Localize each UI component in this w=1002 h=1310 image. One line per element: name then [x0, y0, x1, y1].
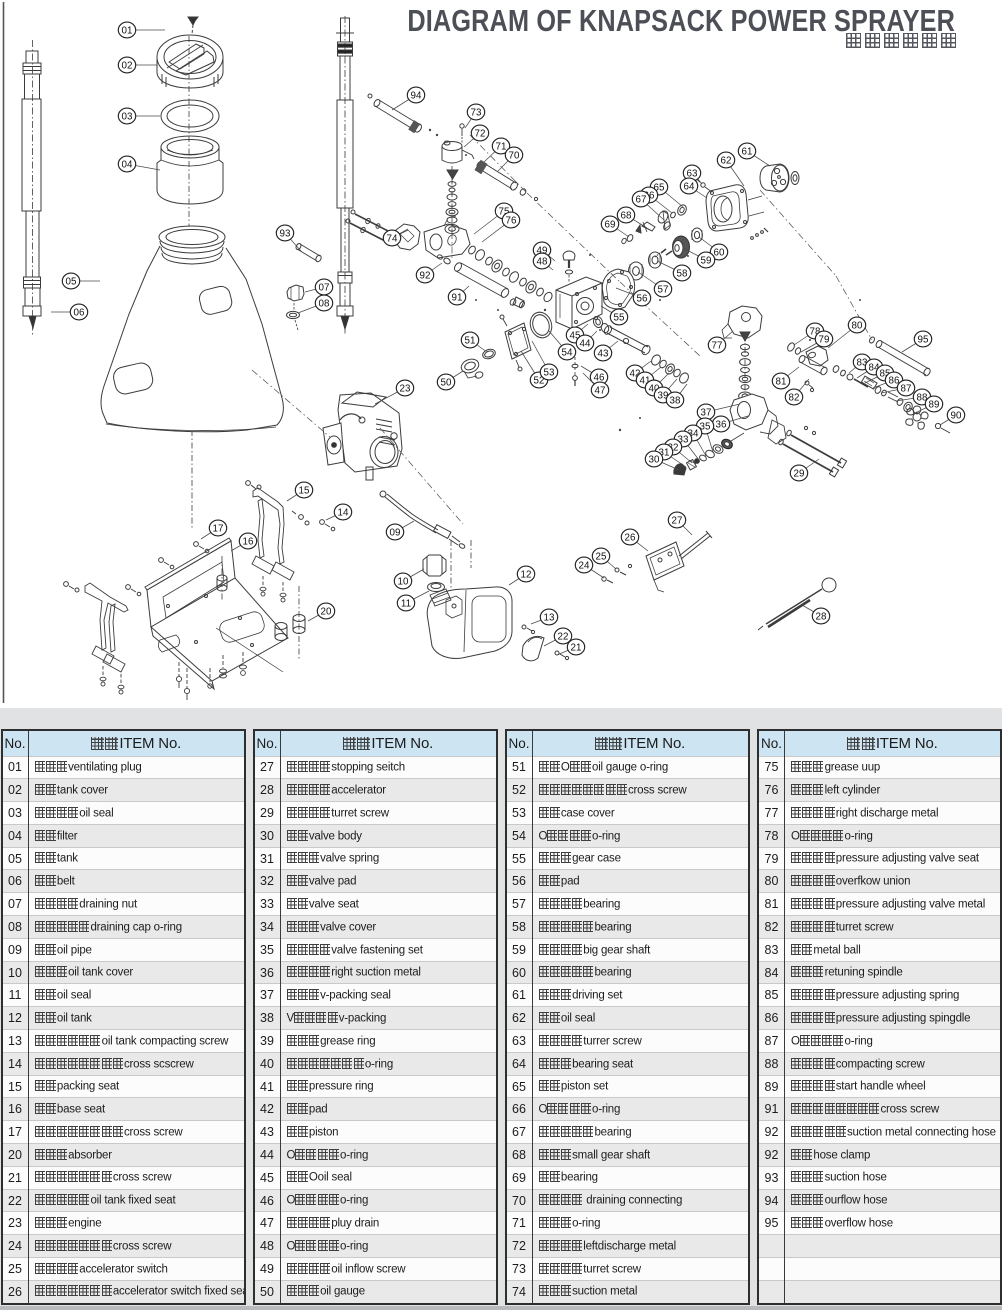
- svg-text:93: 93: [280, 228, 291, 239]
- svg-text:12: 12: [521, 569, 532, 580]
- svg-text:24: 24: [579, 560, 590, 571]
- svg-text:29: 29: [794, 468, 805, 479]
- svg-text:07: 07: [319, 282, 330, 293]
- svg-text:81: 81: [776, 376, 787, 387]
- svg-text:67: 67: [636, 194, 647, 205]
- svg-text:14: 14: [338, 507, 349, 518]
- svg-text:70: 70: [509, 150, 520, 161]
- svg-text:04: 04: [122, 159, 133, 170]
- svg-text:71: 71: [496, 141, 507, 152]
- svg-text:37: 37: [701, 407, 712, 418]
- svg-text:53: 53: [544, 367, 555, 378]
- svg-text:11: 11: [401, 598, 411, 609]
- svg-text:56: 56: [637, 293, 648, 304]
- svg-text:60: 60: [714, 247, 725, 258]
- svg-text:92: 92: [420, 270, 431, 281]
- svg-text:20: 20: [321, 606, 332, 617]
- svg-text:59: 59: [701, 255, 712, 266]
- svg-text:72: 72: [475, 128, 486, 139]
- svg-text:05: 05: [66, 276, 77, 287]
- svg-text:94: 94: [411, 90, 422, 101]
- svg-text:21: 21: [571, 642, 582, 653]
- svg-text:74: 74: [387, 233, 398, 244]
- svg-text:54: 54: [562, 347, 573, 358]
- svg-text:15: 15: [299, 485, 310, 496]
- svg-text:79: 79: [819, 334, 830, 345]
- svg-text:38: 38: [670, 395, 681, 406]
- svg-text:03: 03: [122, 111, 133, 122]
- svg-text:08: 08: [319, 298, 330, 309]
- svg-text:51: 51: [465, 335, 476, 346]
- svg-text:90: 90: [951, 410, 962, 421]
- svg-text:77: 77: [712, 340, 723, 351]
- svg-text:09: 09: [390, 527, 401, 538]
- svg-text:22: 22: [558, 631, 569, 642]
- svg-text:28: 28: [816, 611, 827, 622]
- svg-text:82: 82: [789, 392, 800, 403]
- svg-text:62: 62: [721, 155, 732, 166]
- svg-text:10: 10: [398, 576, 409, 587]
- svg-text:50: 50: [441, 377, 452, 388]
- svg-text:48: 48: [537, 256, 548, 267]
- svg-text:73: 73: [471, 107, 482, 118]
- svg-text:58: 58: [677, 268, 688, 279]
- svg-text:69: 69: [605, 219, 616, 230]
- svg-text:61: 61: [742, 146, 753, 157]
- svg-text:13: 13: [544, 612, 555, 623]
- svg-text:26: 26: [625, 532, 636, 543]
- svg-text:23: 23: [400, 383, 411, 394]
- svg-text:80: 80: [852, 320, 863, 331]
- svg-text:55: 55: [614, 312, 625, 323]
- svg-text:01: 01: [122, 25, 133, 36]
- svg-text:25: 25: [596, 551, 607, 562]
- svg-text:44: 44: [580, 338, 591, 349]
- svg-text:16: 16: [243, 536, 254, 547]
- svg-text:47: 47: [595, 385, 606, 396]
- svg-text:76: 76: [506, 215, 517, 226]
- svg-text:89: 89: [929, 399, 940, 410]
- svg-text:30: 30: [649, 454, 660, 465]
- svg-text:36: 36: [716, 419, 727, 430]
- svg-text:02: 02: [122, 60, 133, 71]
- svg-text:43: 43: [598, 348, 609, 359]
- svg-text:64: 64: [684, 181, 695, 192]
- svg-text:95: 95: [918, 334, 929, 345]
- svg-text:17: 17: [213, 523, 224, 534]
- svg-text:87: 87: [901, 383, 912, 394]
- svg-text:06: 06: [74, 307, 85, 318]
- svg-text:91: 91: [452, 292, 463, 303]
- svg-text:27: 27: [672, 515, 683, 526]
- svg-text:57: 57: [658, 284, 669, 295]
- svg-text:68: 68: [621, 210, 632, 221]
